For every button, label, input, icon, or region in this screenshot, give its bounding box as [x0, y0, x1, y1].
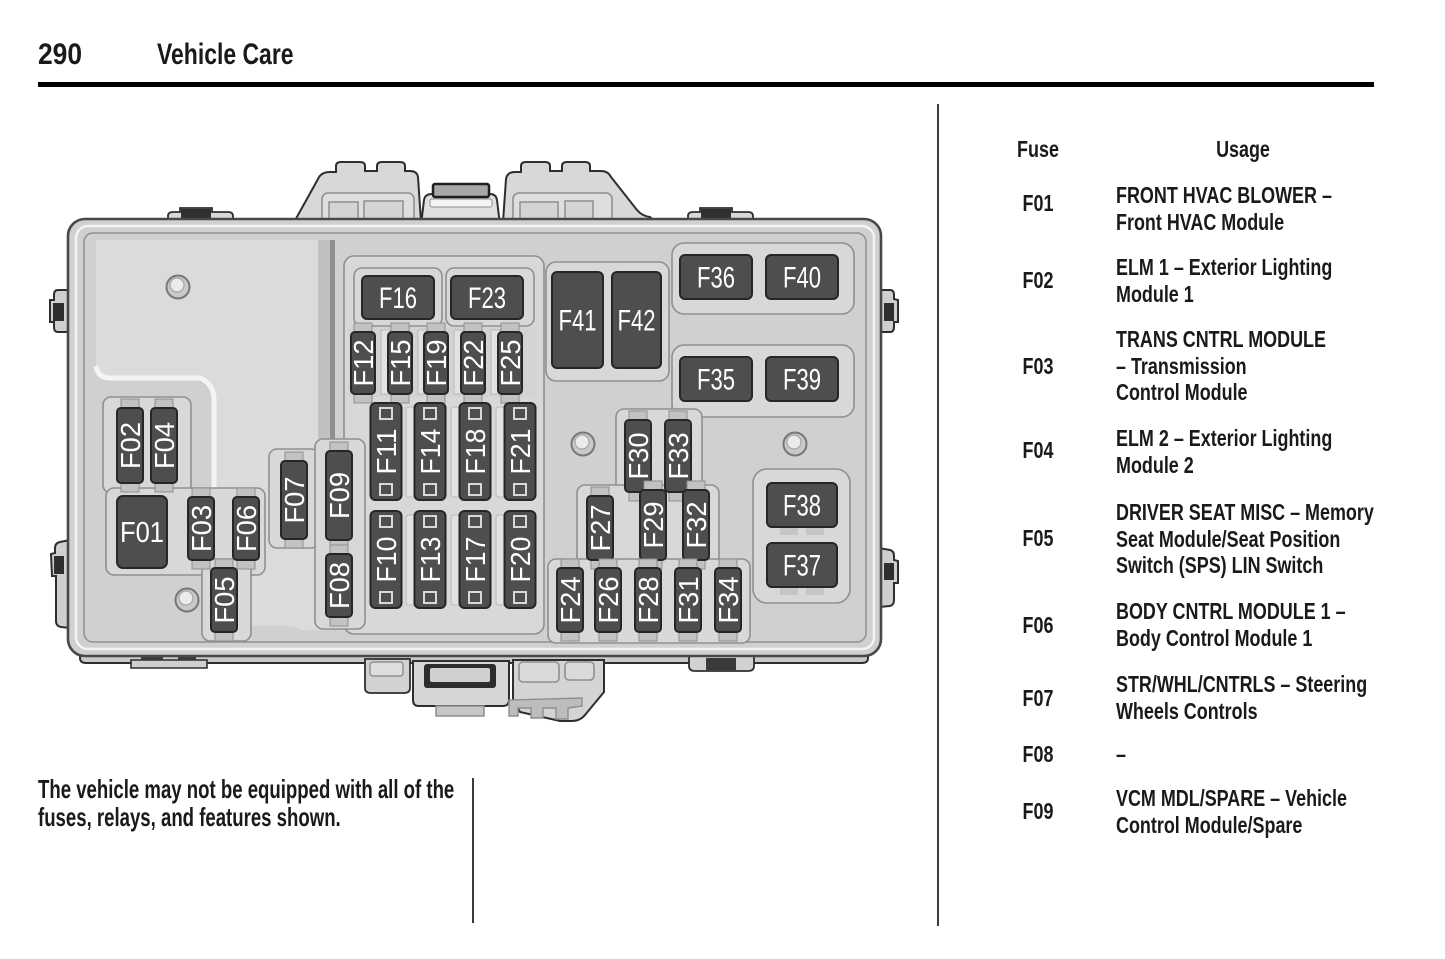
- svg-text:F22: F22: [458, 340, 489, 387]
- svg-text:F29: F29: [638, 502, 669, 549]
- svg-text:F30: F30: [623, 433, 654, 480]
- svg-text:F40: F40: [783, 262, 821, 295]
- svg-text:F27: F27: [585, 505, 616, 552]
- svg-text:F36: F36: [697, 262, 735, 295]
- svg-text:F23: F23: [468, 282, 506, 315]
- svg-text:F41: F41: [559, 305, 597, 338]
- svg-text:F42: F42: [618, 305, 656, 338]
- svg-text:F35: F35: [697, 364, 735, 397]
- svg-text:F15: F15: [385, 340, 416, 387]
- svg-text:F08: F08: [324, 562, 355, 609]
- svg-text:F26: F26: [593, 577, 624, 624]
- svg-text:F31: F31: [673, 577, 704, 624]
- svg-text:F37: F37: [783, 550, 821, 583]
- svg-text:F20: F20: [505, 537, 536, 583]
- svg-text:F18: F18: [460, 429, 491, 475]
- svg-text:F39: F39: [783, 364, 821, 397]
- svg-text:F07: F07: [279, 477, 310, 524]
- svg-text:F38: F38: [783, 490, 821, 523]
- svg-text:F14: F14: [415, 429, 446, 475]
- svg-text:F05: F05: [209, 577, 240, 624]
- svg-text:F11: F11: [371, 429, 402, 475]
- svg-text:F25: F25: [495, 340, 526, 387]
- svg-text:F28: F28: [633, 577, 664, 624]
- svg-text:F17: F17: [460, 537, 491, 583]
- svg-text:F19: F19: [421, 340, 452, 387]
- svg-text:F21: F21: [505, 429, 536, 475]
- svg-text:F03: F03: [186, 505, 217, 552]
- svg-text:F09: F09: [324, 472, 355, 519]
- svg-text:F04: F04: [149, 422, 180, 469]
- svg-text:F33: F33: [663, 433, 694, 480]
- svg-text:F06: F06: [231, 505, 262, 552]
- svg-text:F12: F12: [348, 340, 379, 387]
- svg-text:F01: F01: [120, 517, 164, 549]
- svg-text:F16: F16: [379, 282, 417, 315]
- svg-text:F34: F34: [713, 577, 744, 624]
- svg-text:F10: F10: [371, 537, 402, 583]
- svg-text:F24: F24: [555, 577, 586, 624]
- svg-text:F32: F32: [681, 502, 712, 549]
- svg-text:F13: F13: [415, 537, 446, 583]
- svg-text:F02: F02: [115, 422, 146, 469]
